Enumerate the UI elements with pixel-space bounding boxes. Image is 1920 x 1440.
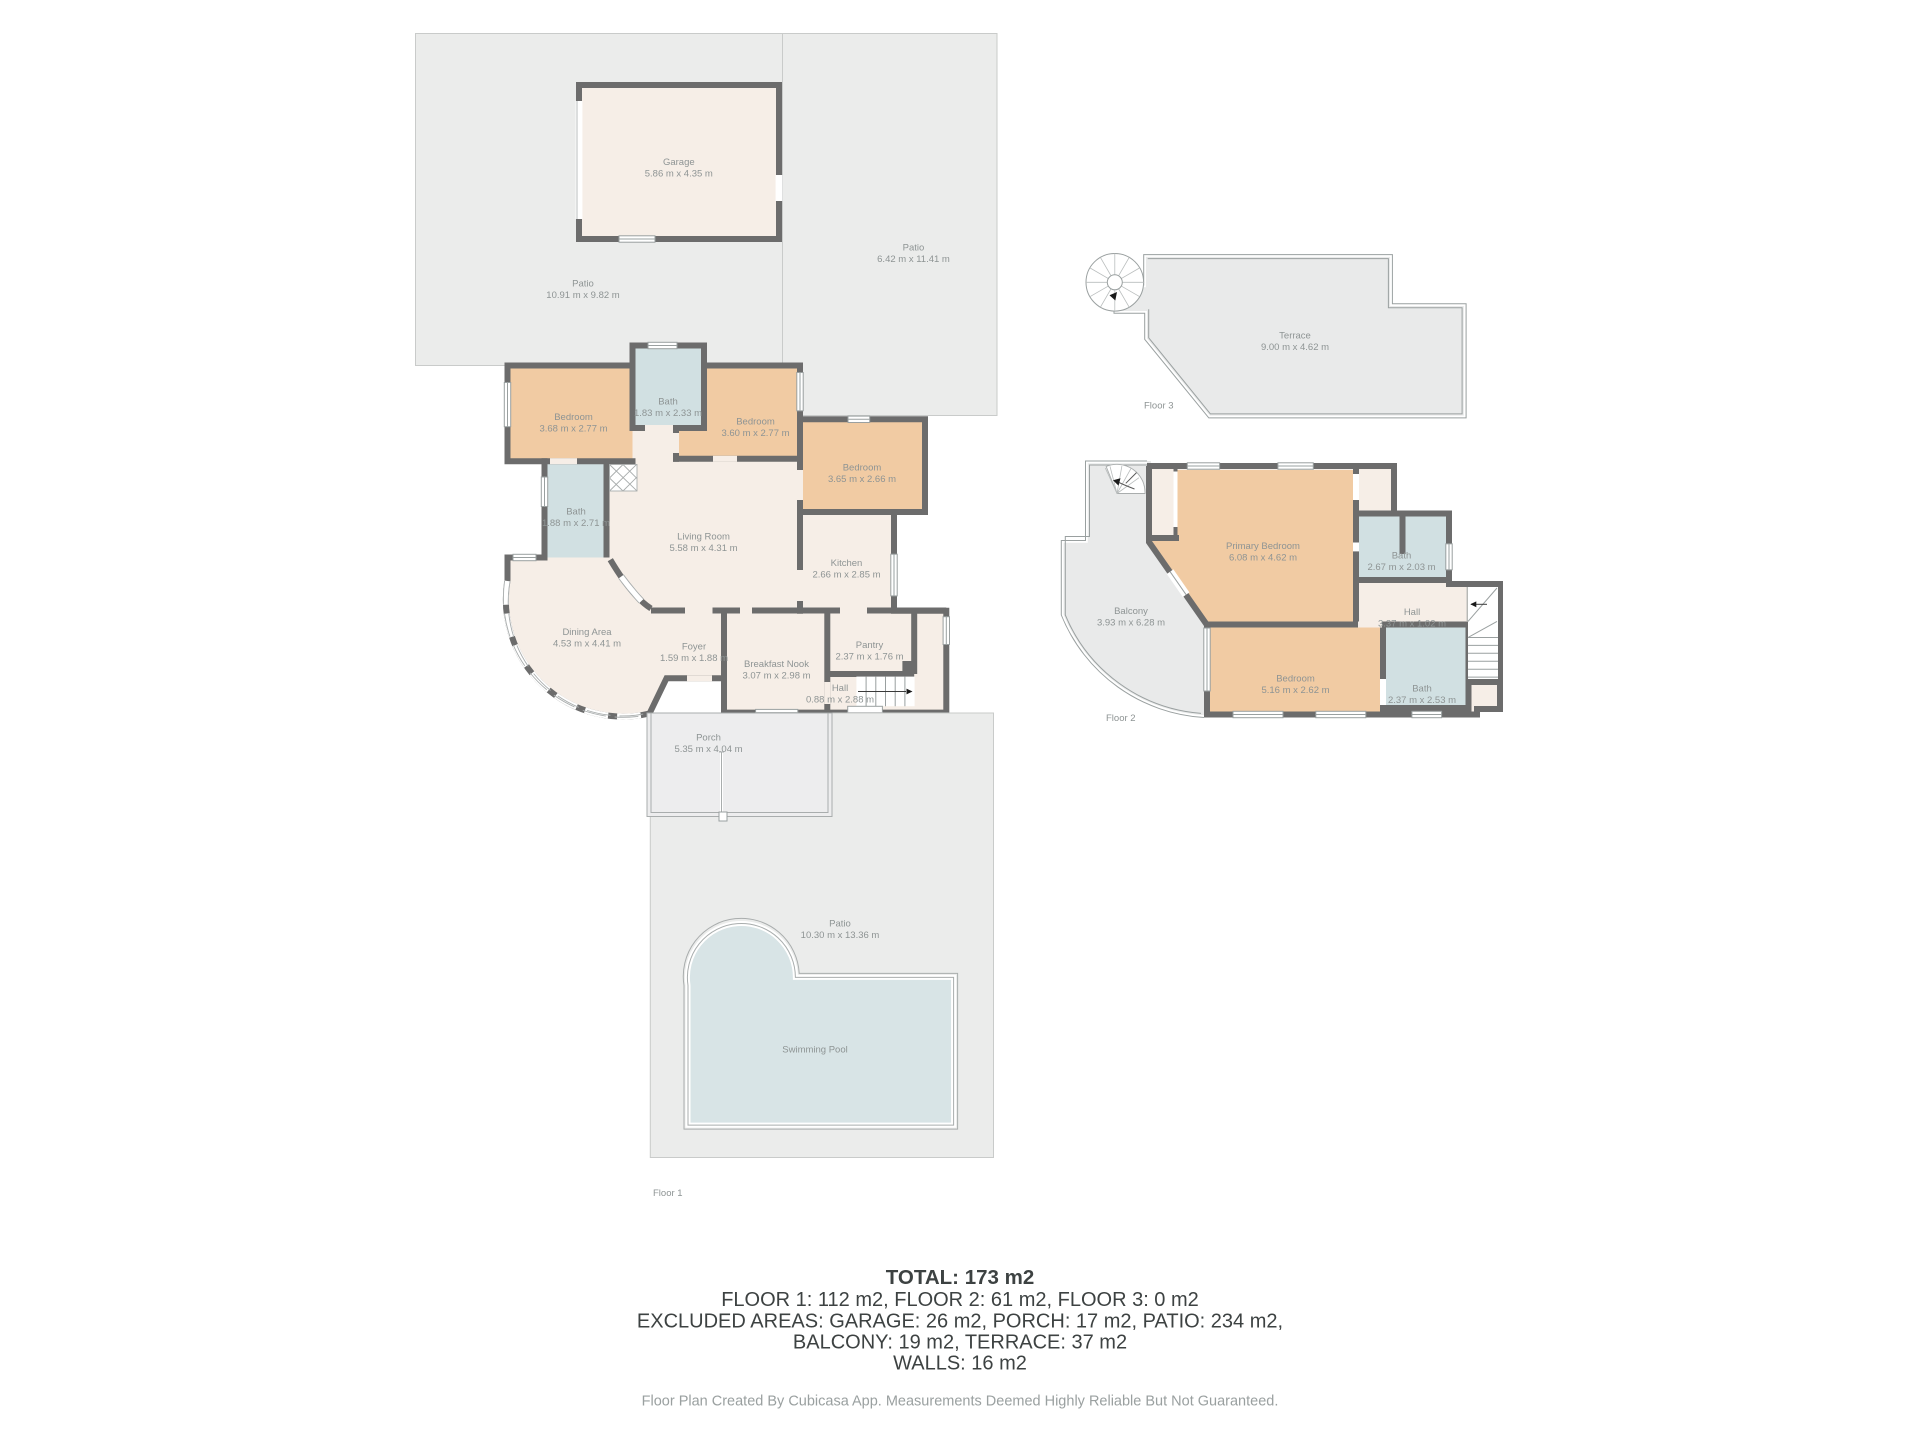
svg-text:TOTAL: 173 m2: TOTAL: 173 m2 [886,1266,1034,1289]
svg-text:EXCLUDED AREAS: GARAGE: 26 m2,: EXCLUDED AREAS: GARAGE: 26 m2, PORCH: 17… [637,1311,1283,1333]
svg-text:Dining Area4.53 m x 4.41 m: Dining Area4.53 m x 4.41 m [553,627,621,650]
svg-text:Floor 2: Floor 2 [1106,713,1136,724]
svg-text:FLOOR 1: 112 m2, FLOOR 2: 61 m: FLOOR 1: 112 m2, FLOOR 2: 61 m2, FLOOR 3… [721,1289,1199,1311]
svg-text:Floor 1: Floor 1 [653,1188,683,1199]
svg-text:Breakfast Nook3.07 m x 2.98 m: Breakfast Nook3.07 m x 2.98 m [742,659,810,682]
svg-text:WALLS: 16 m2: WALLS: 16 m2 [893,1353,1027,1375]
svg-text:Swimming Pool: Swimming Pool [782,1045,847,1056]
svg-text:BALCONY: 19 m2, TERRACE: 37 m2: BALCONY: 19 m2, TERRACE: 37 m2 [793,1332,1127,1354]
svg-text:Floor Plan Created By Cubicasa: Floor Plan Created By Cubicasa App. Meas… [642,1394,1279,1410]
svg-text:Floor 3: Floor 3 [1144,401,1174,412]
svg-text:Living Room5.58 m x 4.31 m: Living Room5.58 m x 4.31 m [669,532,737,555]
svg-text:Primary Bedroom6.08 m x 4.62 m: Primary Bedroom6.08 m x 4.62 m [1226,541,1300,564]
